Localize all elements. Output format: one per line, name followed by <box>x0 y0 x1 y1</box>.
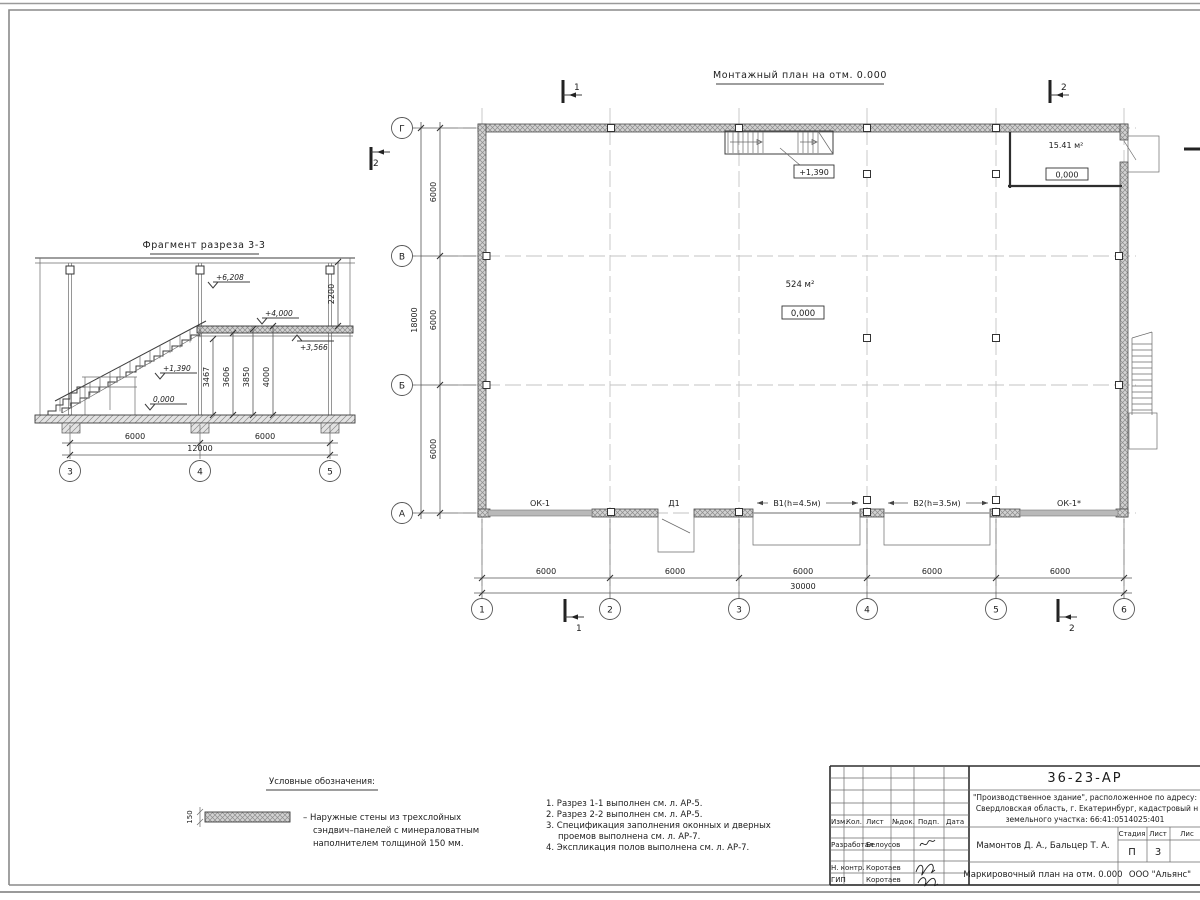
legend-thickness: 150 <box>186 810 194 823</box>
col-data: Дата <box>946 818 964 826</box>
legend-line-2: сэндвич–панелей с минераловатным <box>313 826 479 836</box>
col-kol: Кол. <box>846 818 862 826</box>
room-area: 15.41 м² <box>1049 141 1084 150</box>
dim-total-y: 18000 <box>410 307 419 332</box>
plan-exterior-recesses <box>658 517 990 552</box>
label-v2: В2(h=3.5м) <box>913 499 960 508</box>
sec-axis-5: 5 <box>327 468 333 478</box>
elev-0: 0,000 <box>153 395 175 404</box>
row2-role: Н. контр. <box>831 864 865 872</box>
tb-org: ООО "Альянс" <box>1129 870 1191 880</box>
col-list: Лист <box>866 818 884 826</box>
plan-exterior-stair <box>1129 332 1157 449</box>
plan-stair: +1,390 <box>725 131 834 178</box>
col-podp: Подп. <box>918 818 939 826</box>
signature-1 <box>920 840 935 846</box>
notes: 1. Разрез 1-1 выполнен см. л. АР-5. 2. Р… <box>546 799 771 853</box>
window-ok1s <box>1020 510 1118 516</box>
note-3: 3. Спецификация заполнения оконных и две… <box>546 821 771 831</box>
tb-stage-label: Стадия <box>1119 830 1146 838</box>
plan-walls <box>478 124 1128 517</box>
tb-lists-label: Лис <box>1180 830 1194 838</box>
plan-columns <box>483 125 1123 516</box>
dim-left-2: 6000 <box>429 310 438 330</box>
legend: Условные обозначения: 150 – Наружные сте… <box>186 777 479 849</box>
tb-stage: П <box>1128 847 1136 858</box>
plan-dims-bottom: 6000 6000 6000 6000 6000 30000 1 2 3 4 5… <box>472 519 1135 620</box>
marker-bottom-2: 2 <box>1069 624 1075 634</box>
vdim-4000: 4000 <box>262 367 271 387</box>
axis-g: Г <box>399 125 405 135</box>
dim-bay-4: 6000 <box>922 567 942 576</box>
dim-left-1: 6000 <box>429 182 438 202</box>
section-markers: 1 2 1 2 2 <box>371 80 1200 634</box>
axis-4: 4 <box>864 606 870 616</box>
door-d1-leaf <box>662 519 690 533</box>
stair-elev-label: +1,390 <box>799 168 829 177</box>
tb-project-1: "Производственное здание", расположенное… <box>973 793 1197 802</box>
label-v1: В1(h=4.5м) <box>773 499 820 508</box>
dim-bay-5: 6000 <box>1050 567 1070 576</box>
elev-1390: +1,390 <box>163 364 191 373</box>
legend-title: Условные обозначения: <box>269 777 375 787</box>
axis-5: 5 <box>993 606 999 616</box>
section-hdims: 6000 6000 12000 3 4 5 <box>60 425 341 482</box>
legend-line-1: – Наружные стены из трехслойных <box>303 813 461 823</box>
plan-dims-left: 6000 6000 6000 18000 Г В Б А <box>392 118 477 524</box>
axis-v: В <box>399 253 405 263</box>
axis-a: А <box>399 510 406 520</box>
tb-doc-name: Маркировочный план на отм. 0.000 <box>963 870 1122 880</box>
title-block: Изм. Кол. Лист №док. Подп. Дата Разработ… <box>830 766 1200 886</box>
axis-b: Б <box>399 382 405 392</box>
sec-dim-total: 12000 <box>187 444 212 453</box>
marker-left-2: 2 <box>373 159 379 169</box>
tb-project-2: Свердловская область, г. Екатеринбург, к… <box>976 804 1198 813</box>
dim-bay-1: 6000 <box>536 567 556 576</box>
window-ok1 <box>488 510 592 516</box>
section-elevations: +6,208 +4,000 +3,566 +1,390 0,000 <box>145 273 334 410</box>
plan-room-1541: 15.41 м² 0,000 <box>1008 132 1159 188</box>
legend-wall-symbol <box>205 812 290 822</box>
axis-1: 1 <box>479 606 485 616</box>
tb-code: 36-23-АР <box>1047 771 1122 786</box>
marker-bottom-1: 1 <box>576 624 582 634</box>
vdim-2200: 2200 <box>327 284 336 304</box>
axis-3: 3 <box>736 606 742 616</box>
main-area: 524 м² <box>786 280 815 290</box>
drawing-canvas: Монтажный план на отм. 0.000 15.41 м² <box>0 0 1200 900</box>
label-d1: Д1 <box>668 499 679 508</box>
vdim-3467: 3467 <box>202 367 211 387</box>
legend-line-3: наполнителем толщиной 150 мм. <box>313 839 464 849</box>
tb-authors: Мамонтов Д. А., Бальцер Т. А. <box>976 841 1109 851</box>
axis-6: 6 <box>1121 606 1127 616</box>
dim-left-3: 6000 <box>429 439 438 459</box>
marker-top-1: 1 <box>574 83 580 93</box>
section-fragment: Фрагмент разреза 3-3 +6,208 +4,000 + <box>35 240 355 482</box>
section-vdims: 3467 3606 3850 4000 2200 <box>202 259 341 418</box>
dim-bay-3: 6000 <box>793 567 813 576</box>
drawing-sheet: Монтажный план на отм. 0.000 15.41 м² <box>0 0 1200 900</box>
sec-axis-4: 4 <box>197 468 203 478</box>
room-level: 0,000 <box>1056 171 1079 180</box>
elev-6208: +6,208 <box>216 273 244 282</box>
label-ok1s: ОК-1* <box>1057 499 1081 508</box>
note-2: 2. Разрез 2-2 выполнен см. л. АР-5. <box>546 810 703 820</box>
row3-name: Коротаев <box>866 876 901 884</box>
section-title: Фрагмент разреза 3-3 <box>143 240 266 251</box>
vdim-3606: 3606 <box>222 367 231 387</box>
label-ok1: ОК-1 <box>530 499 550 508</box>
marker-top-2: 2 <box>1061 83 1067 93</box>
col-ndok: №док. <box>892 818 915 826</box>
dim-bay-2: 6000 <box>665 567 685 576</box>
note-4: 4. Экспликация полов выполнена см. л. АР… <box>546 843 749 853</box>
signature-2 <box>916 864 938 886</box>
axis-2: 2 <box>607 606 613 616</box>
tb-list-num: 3 <box>1155 847 1161 858</box>
sheet-frame <box>0 4 1200 893</box>
vdim-3850: 3850 <box>242 367 251 387</box>
note-1: 1. Разрез 1-1 выполнен см. л. АР-5. <box>546 799 703 809</box>
row2-name: Коротаев <box>866 864 901 872</box>
entry-door-leaf <box>1124 141 1136 160</box>
elev-3566: +3,566 <box>300 343 328 352</box>
note-3b: проемов выполнена см. л. АР-7. <box>558 832 700 842</box>
tb-project-3: земельного участка: 66:41:0514025:401 <box>1006 815 1165 824</box>
plan-title: Монтажный план на отм. 0.000 <box>713 70 887 81</box>
tb-list-label: Лист <box>1149 830 1167 838</box>
elev-4000: +4,000 <box>265 309 293 318</box>
sec-dim-1: 6000 <box>125 432 145 441</box>
row3-role: ГИП <box>831 876 846 884</box>
dim-total-x: 30000 <box>790 582 815 591</box>
entry-platform <box>1128 136 1159 172</box>
row1-name: Белоусов <box>866 841 900 849</box>
sec-axis-3: 3 <box>67 468 73 478</box>
col-izm: Изм. <box>831 818 847 826</box>
plan-axis-grid <box>400 108 1136 598</box>
main-level: 0,000 <box>791 309 815 319</box>
sec-dim-2: 6000 <box>255 432 275 441</box>
